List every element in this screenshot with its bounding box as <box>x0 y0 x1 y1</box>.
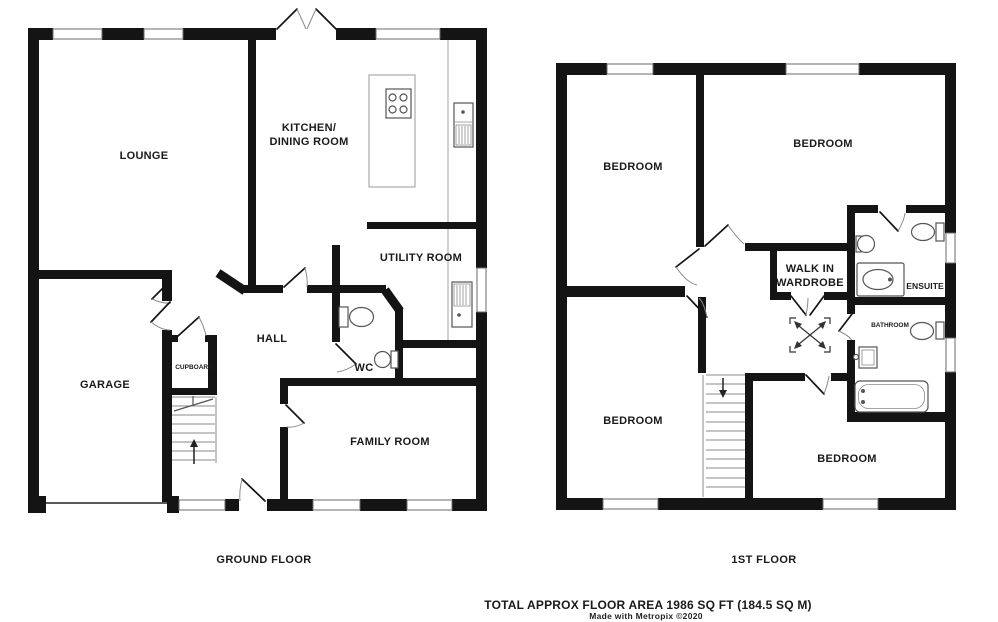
room-label-kitchen-line1: KITCHEN/ <box>282 122 336 134</box>
garage-internal-door-icon <box>151 302 170 330</box>
wc-door-icon <box>336 344 356 372</box>
ensuite-door-icon <box>880 212 905 231</box>
window-icon <box>786 64 859 74</box>
window-icon <box>144 29 183 39</box>
first-floor-plan: BEDROOM BEDROOM BEDROOM BEDROOM WALK IN … <box>556 63 956 566</box>
window-icon <box>946 233 955 263</box>
room-label-bathroom: BATHROOM <box>871 322 909 329</box>
window-icon <box>53 29 102 39</box>
footer: TOTAL APPROX FLOOR AREA 1986 SQ FT (184.… <box>484 598 811 621</box>
bath-icon <box>855 381 928 412</box>
window-icon <box>313 500 360 510</box>
room-label-bedroom-bottom-right: BEDROOM <box>817 453 877 465</box>
stairs-icon <box>703 375 745 497</box>
bathroom-basin-icon <box>854 347 878 368</box>
wc-basin-icon <box>375 351 399 368</box>
window-icon <box>603 499 658 509</box>
wc-toilet-icon <box>339 307 374 327</box>
first-floor-title: 1ST FLOOR <box>731 554 796 566</box>
window-icon <box>179 500 225 510</box>
window-icon <box>946 338 955 372</box>
bathroom-toilet-icon <box>911 322 945 340</box>
window-icon <box>823 499 878 509</box>
utility-appliance-icon <box>452 282 472 327</box>
shower-icon <box>857 263 904 296</box>
room-label-wc: WC <box>355 362 374 374</box>
bedroom-bottom-right-door-icon <box>806 375 829 394</box>
ground-floor-title: GROUND FLOOR <box>216 554 311 566</box>
room-label-hall: HALL <box>257 333 288 345</box>
bedroom-top-left-door-icon <box>676 249 699 285</box>
bathroom-door-icon <box>839 314 852 340</box>
room-label-lounge: LOUNGE <box>120 150 169 162</box>
window-icon <box>477 268 486 312</box>
room-label-family: FAMILY ROOM <box>350 436 430 448</box>
room-label-kitchen-line2: DINING ROOM <box>269 136 348 148</box>
window-icon <box>407 500 452 510</box>
window-icon <box>607 64 653 74</box>
ensuite-basin-icon <box>856 236 875 253</box>
floorplan-drawing: LOUNGE KITCHEN/ DINING ROOM UTILITY ROOM… <box>0 0 998 622</box>
ground-floor-plan: LOUNGE KITCHEN/ DINING ROOM UTILITY ROOM… <box>28 9 487 566</box>
room-label-wardrobe-line2: WARDROBE <box>776 277 844 289</box>
room-label-utility: UTILITY ROOM <box>380 252 462 264</box>
room-label-bedroom-top-right: BEDROOM <box>793 138 853 150</box>
kitchen-door-icon <box>284 268 307 287</box>
kitchen-sink-icon <box>454 103 473 147</box>
family-room-door-icon <box>286 405 304 427</box>
stairs-icon <box>172 396 216 464</box>
room-label-bedroom-bottom-left: BEDROOM <box>603 415 663 427</box>
room-label-bedroom-top-left: BEDROOM <box>603 161 663 173</box>
room-label-ensuite: ENSUITE <box>906 281 944 291</box>
ensuite-toilet-icon <box>912 223 945 241</box>
room-label-cupboard: CUPBOARD <box>175 364 213 371</box>
credit-text: Made with Metropix ©2020 <box>589 611 703 621</box>
wardrobe-doors-icon <box>791 296 824 315</box>
window-icon <box>376 29 440 39</box>
floorplan-page: LOUNGE KITCHEN/ DINING ROOM UTILITY ROOM… <box>0 0 998 622</box>
french-door-icon <box>277 9 336 29</box>
total-area-text: TOTAL APPROX FLOOR AREA 1986 SQ FT (184.… <box>484 598 811 612</box>
cupboard-door-icon <box>178 317 206 336</box>
front-door-icon <box>240 479 265 501</box>
room-label-wardrobe-line1: WALK IN <box>786 263 835 275</box>
void-symbol-icon <box>790 318 830 352</box>
bedroom-top-right-door-icon <box>705 225 744 246</box>
kitchen-island-icon <box>369 75 415 187</box>
room-label-garage: GARAGE <box>80 379 130 391</box>
